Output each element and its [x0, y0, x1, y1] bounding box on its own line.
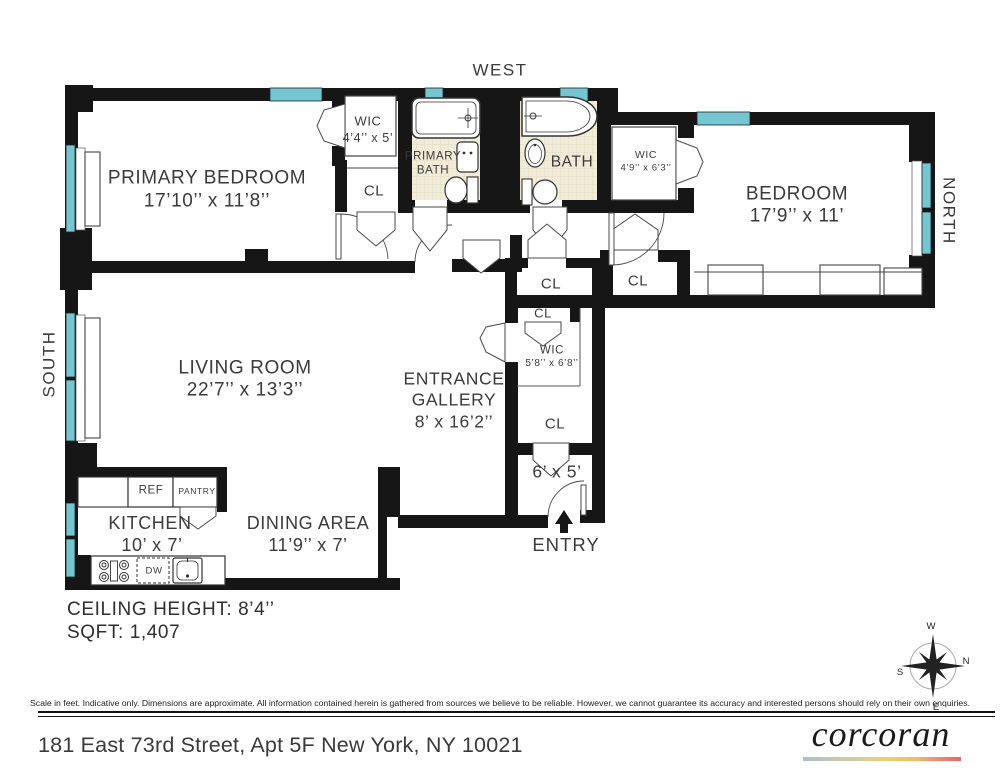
closet-label: CL	[545, 417, 565, 432]
wic-bedroom-label: WIC	[635, 150, 657, 161]
dining-area-dims: 11’9’’ x 7’	[268, 536, 347, 554]
closet-label: CL	[541, 277, 561, 292]
disclaimer-text: Scale in feet. Indicative only. Dimensio…	[22, 698, 978, 708]
ceiling-height-stat: CEILING HEIGHT: 8’4’’	[67, 600, 275, 619]
address-title: 181 East 73rd Street, Apt 5F New York, N…	[38, 733, 523, 758]
kitchen-label: KITCHEN	[108, 514, 191, 532]
entry-arrow-icon	[555, 510, 573, 533]
entry-label: ENTRY	[532, 536, 599, 555]
dining-area-label: DINING AREA	[247, 514, 370, 532]
vestibule-dims: 6’ x 5’	[532, 463, 581, 481]
wic-gallery-label: WIC	[540, 345, 564, 357]
compass-west-label: W	[927, 621, 936, 632]
bedroom-dims: 17’9’’ x 11’	[750, 207, 845, 226]
wic-gallery-dims: 5’8’’ x 6’8’’	[525, 359, 578, 369]
entrance-gallery-dims: 8’ x 16’2’’	[415, 413, 494, 431]
wic-primary-label: WIC	[354, 115, 381, 128]
bath-label: BATH	[551, 154, 594, 170]
toilet-icon	[533, 180, 557, 204]
wic-primary-dims: 4’4’’ x 5’	[343, 132, 393, 145]
closet-label: CL	[364, 184, 384, 199]
corcoran-logo: corcoran	[798, 713, 964, 755]
compass-north-label: N	[963, 656, 970, 667]
floor-plan-page: W N S E WEST NORTH SOUTH PRIMARY BEDROOM…	[0, 0, 1000, 772]
toilet-tank-icon	[522, 179, 532, 205]
brand-gradient-bar	[803, 757, 961, 761]
toilet-tank-icon	[467, 177, 478, 203]
dishwasher-label: DW	[145, 566, 162, 576]
pantry-label: PANTRY	[178, 487, 215, 496]
bedroom-label: BEDROOM	[746, 185, 848, 204]
orientation-south: SOUTH	[41, 331, 58, 398]
closet-label: CL	[628, 274, 648, 289]
living-room-label: LIVING ROOM	[178, 359, 311, 378]
wic-bedroom-dims: 4’9’’ x 6’3’’	[621, 163, 672, 173]
primary-bath-label-1: PRIMARY	[405, 151, 461, 163]
primary-bath-label-2: BATH	[417, 165, 449, 177]
tub-icon	[522, 97, 597, 136]
primary-bedroom-label: PRIMARY BEDROOM	[108, 169, 306, 188]
orientation-west: WEST	[472, 62, 527, 79]
sink-icon	[525, 139, 545, 167]
primary-bedroom-dims: 17’10’’ x 11’8’’	[144, 192, 270, 211]
toilet-icon	[445, 177, 467, 203]
closet-label: CL	[534, 307, 552, 320]
refrigerator-label: REF	[139, 485, 164, 497]
sqft-stat: SQFT: 1,407	[67, 623, 180, 642]
orientation-north: NORTH	[941, 177, 958, 245]
living-room-dims: 22’7’’ x 13’3’’	[187, 381, 303, 400]
entrance-gallery-label-2: GALLERY	[412, 391, 497, 409]
entrance-gallery-label-1: ENTRANCE	[403, 370, 504, 388]
compass-south-label: S	[897, 667, 903, 678]
kitchen-dims: 10’ x 7’	[121, 536, 182, 554]
